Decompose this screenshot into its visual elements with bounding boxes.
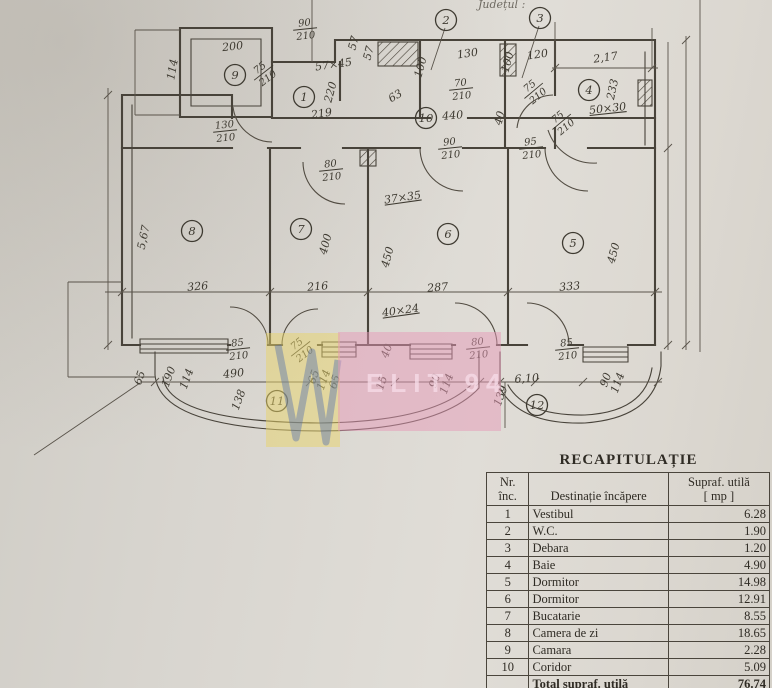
header-nr: Nr.înc. xyxy=(487,473,529,506)
recap-table: Nr.înc. Destinație încăpere Supraf. util… xyxy=(486,472,770,688)
watermark-text: ELIT 94 xyxy=(366,368,507,398)
svg-text:5: 5 xyxy=(569,236,576,250)
svg-text:210: 210 xyxy=(228,350,250,363)
svg-text:210: 210 xyxy=(440,149,462,162)
svg-text:95: 95 xyxy=(524,136,538,148)
dim-label: 190 xyxy=(159,365,178,389)
room-number: 6 xyxy=(438,224,459,245)
watermark-stamp: ELIT 94 xyxy=(266,332,507,447)
dim-label: 5,67 xyxy=(135,224,153,251)
dim-label: 216 xyxy=(306,279,329,294)
dim-label: 2,17 xyxy=(591,49,618,65)
svg-text:80: 80 xyxy=(324,158,338,170)
header-destination: Destinație încăpere xyxy=(529,473,668,506)
scanned-floor-plan-page: Județul : xyxy=(0,0,772,688)
room-number: 8 xyxy=(182,221,203,242)
door-size-label: 90210 xyxy=(437,136,463,162)
room-number: 10 xyxy=(416,108,437,129)
svg-text:210: 210 xyxy=(321,171,343,184)
vent-shaft xyxy=(378,42,418,66)
svg-text:210: 210 xyxy=(215,132,237,145)
svg-text:7: 7 xyxy=(297,222,305,236)
door-size-label: 75210 xyxy=(517,75,551,109)
table-row: 10Coridor5.09 xyxy=(487,659,770,676)
vent-shaft xyxy=(638,80,652,106)
dim-label: 130 xyxy=(456,46,479,62)
door-size-label: 70210 xyxy=(448,77,474,103)
svg-text:3: 3 xyxy=(536,11,543,25)
door-size-label: 85210 xyxy=(225,337,251,363)
room-number: 4 xyxy=(579,80,600,101)
door-size-label: 130210 xyxy=(212,119,238,145)
room-number: 12 xyxy=(527,395,548,416)
door-size-label: 90210 xyxy=(292,17,318,43)
recap-title: RECAPITULAȚIE xyxy=(486,452,771,469)
table-total-row: Total supraf. utilă76.74 xyxy=(487,676,770,688)
dim-label: 120 xyxy=(526,47,549,63)
dim-label: 40×24 xyxy=(380,302,420,320)
table-row: 1Vestibul6.28 xyxy=(487,506,770,523)
room-number: 1 xyxy=(294,87,315,108)
table-row: 3Debara1.20 xyxy=(487,540,770,557)
dim-label: 219 xyxy=(309,106,333,122)
room-number: 7 xyxy=(291,219,312,240)
vent-shaft xyxy=(360,150,376,166)
svg-text:10: 10 xyxy=(419,111,434,125)
svg-text:90: 90 xyxy=(443,136,457,148)
dim-label: 450 xyxy=(378,245,396,270)
dim-label: 138 xyxy=(229,388,248,412)
walls xyxy=(122,28,655,345)
dim-label: 63 xyxy=(386,87,405,105)
svg-text:70: 70 xyxy=(454,77,468,89)
dim-label: 57×45 xyxy=(314,56,353,74)
table-header-row: Nr.înc. Destinație încăpere Supraf. util… xyxy=(487,473,770,506)
dim-label: 490 xyxy=(222,366,245,381)
svg-text:8: 8 xyxy=(188,224,195,238)
room-number: 2 xyxy=(436,10,457,31)
svg-text:2: 2 xyxy=(441,13,449,27)
county-caption: Județul : xyxy=(476,0,525,11)
room-number: 3 xyxy=(530,8,551,29)
table-row: 4Baie4.90 xyxy=(487,557,770,574)
svg-text:90: 90 xyxy=(298,17,312,29)
door-size-label: 75210 xyxy=(545,106,579,140)
svg-text:1: 1 xyxy=(300,90,307,104)
table-row: 8Camera de zi18.65 xyxy=(487,625,770,642)
dim-label: 65 xyxy=(131,369,148,387)
dim-label: 400 xyxy=(316,232,334,257)
dim-label: 114 xyxy=(164,58,180,81)
dim-label: 57 xyxy=(361,45,377,62)
svg-text:9: 9 xyxy=(231,68,238,82)
room-number: 9 xyxy=(225,65,246,86)
svg-text:210: 210 xyxy=(557,350,579,363)
dim-label: 333 xyxy=(559,279,581,294)
dim-label: 57 xyxy=(346,35,362,52)
room-number: 5 xyxy=(563,233,584,254)
door-size-label: 80210 xyxy=(318,158,344,184)
dim-label: 233 xyxy=(604,78,621,102)
svg-text:85: 85 xyxy=(231,337,245,349)
svg-text:6: 6 xyxy=(444,227,451,241)
table-row: 9Camara2.28 xyxy=(487,642,770,659)
recap-section: RECAPITULAȚIE Nr.înc. Destinație încăper… xyxy=(486,452,771,688)
dim-label: 326 xyxy=(187,279,209,294)
svg-text:4: 4 xyxy=(584,83,592,97)
table-row: 5Dormitor14.98 xyxy=(487,574,770,591)
svg-text:85: 85 xyxy=(560,337,574,349)
dim-label: 114 xyxy=(177,367,196,391)
header-area: Supraf. utilă[ mp ] xyxy=(668,473,769,506)
door-size-label: 85210 xyxy=(554,337,580,363)
dim-label: 200 xyxy=(221,39,244,54)
dim-label: 220 xyxy=(321,80,339,105)
dim-label: 440 xyxy=(441,108,464,123)
dim-label: 37×35 xyxy=(383,189,422,207)
dim-label: 450 xyxy=(604,241,622,266)
table-row: 6Dormitor12.91 xyxy=(487,591,770,608)
svg-text:210: 210 xyxy=(521,149,543,162)
dim-label: 287 xyxy=(426,280,449,295)
table-row: 2W.C.1.90 xyxy=(487,523,770,540)
table-row: 7Bucatarie8.55 xyxy=(487,608,770,625)
svg-text:210: 210 xyxy=(295,30,317,43)
dim-label: 50×30 xyxy=(588,100,626,117)
dim-label: 6,10 xyxy=(514,371,539,386)
svg-text:12: 12 xyxy=(530,398,545,412)
svg-text:210: 210 xyxy=(451,90,473,103)
